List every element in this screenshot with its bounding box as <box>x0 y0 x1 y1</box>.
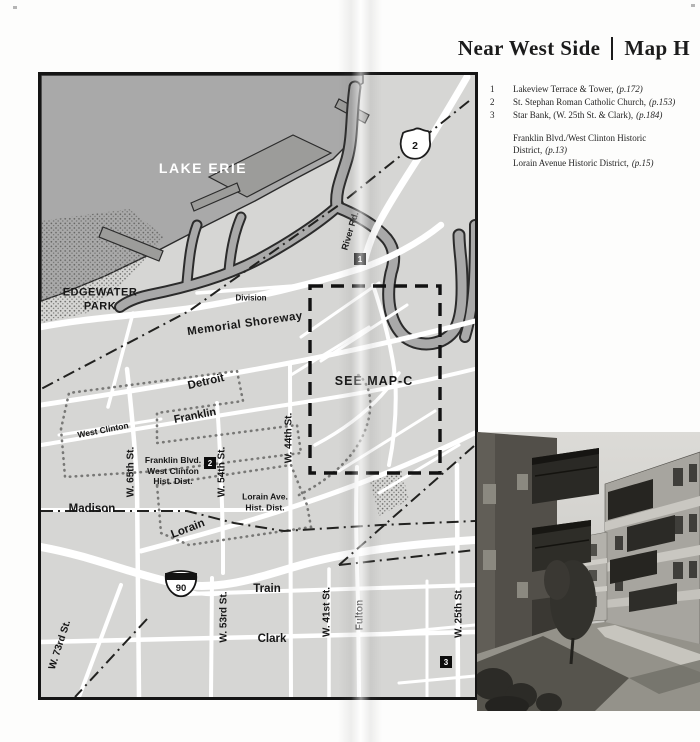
page-reference: (p.153) <box>649 97 675 107</box>
street-label-w-65th: W. 65th St. <box>126 447 137 498</box>
street-label-madison: Madison <box>69 503 116 515</box>
legend-item-text: St. Stephan Roman Catholic Church,(p.153… <box>513 97 675 108</box>
page-reference: (p.13) <box>545 145 567 155</box>
title-separator <box>611 37 613 60</box>
district-label-franklin-west-clinton: Franklin Blvd. West Clinton Hist. Dist. <box>145 455 201 487</box>
page-reference: (p.172) <box>617 84 643 94</box>
street-label-clark: Clark <box>258 633 287 645</box>
page-reference: (p.15) <box>632 158 654 168</box>
street-label-train: Train <box>253 583 280 595</box>
page-title-map-id: Map H <box>624 36 690 61</box>
legend-item-text: Star Bank, (W. 25th St. & Clark),(p.184) <box>513 110 662 121</box>
legend-item: 2 St. Stephan Roman Catholic Church,(p.1… <box>490 97 698 108</box>
photo-right-building <box>605 452 700 646</box>
legend-item: 3 Star Bank, (W. 25th St. & Clark),(p.18… <box>490 110 698 121</box>
see-map-c-label: SEE MAP-C <box>335 374 413 388</box>
district-label-lorain-ave: Lorain Ave. Hist. Dist. <box>242 491 288 512</box>
map-legend: 1 Lakeview Terrace & Tower,(p.172) 2 St.… <box>490 84 698 172</box>
legend-districts: Franklin Blvd./West Clinton Historic Dis… <box>513 133 665 170</box>
legend-district-item: Franklin Blvd./West Clinton Historic Dis… <box>513 133 665 156</box>
street-label-division: Division <box>235 294 266 303</box>
route-2-number: 2 <box>412 140 418 152</box>
street-label-w-53rd: W. 53rd St. <box>219 591 230 642</box>
park-label-edgewater: EDGEWATER PARK <box>63 286 138 314</box>
photo-lakeview-terrace <box>477 432 700 711</box>
route-2-shield: 2 <box>401 128 431 158</box>
print-artifact <box>691 4 695 7</box>
photo-graphic <box>477 432 700 711</box>
page-title: Near West Side Map H <box>458 36 690 61</box>
print-artifact <box>13 6 17 9</box>
legend-item-text: Lakeview Terrace & Tower,(p.172) <box>513 84 643 95</box>
map-h-near-west-side: 2 90 LAKE ERIE EDGEWATER PARK Division M… <box>38 72 478 700</box>
street-label-w-25th: W. 25th St <box>454 590 465 638</box>
legend-item-number: 3 <box>490 110 513 121</box>
legend-item: 1 Lakeview Terrace & Tower,(p.172) <box>490 84 698 95</box>
site-marker-3: 3 <box>440 656 452 668</box>
water-label-lake-erie: LAKE ERIE <box>159 160 247 176</box>
legend-item-number: 2 <box>490 97 513 108</box>
legend-district-item: Lorain Avenue Historic District,(p.15) <box>513 158 665 170</box>
street-label-w-41st: W. 41st St. <box>322 587 333 637</box>
street-label-fulton: Fulton <box>355 600 366 631</box>
street-label-w-54th: W. 54th St. <box>217 447 228 498</box>
site-marker-2: 2 <box>204 457 216 469</box>
book-page: { "title": { "section": "Near West Side"… <box>0 0 700 742</box>
page-title-section: Near West Side <box>458 36 601 61</box>
page-reference: (p.184) <box>636 110 662 120</box>
street-label-w-44th: W. 44th St. <box>284 413 295 464</box>
site-marker-1: 1 <box>354 253 366 265</box>
interstate-90-number: 90 <box>176 583 187 594</box>
legend-item-number: 1 <box>490 84 513 95</box>
